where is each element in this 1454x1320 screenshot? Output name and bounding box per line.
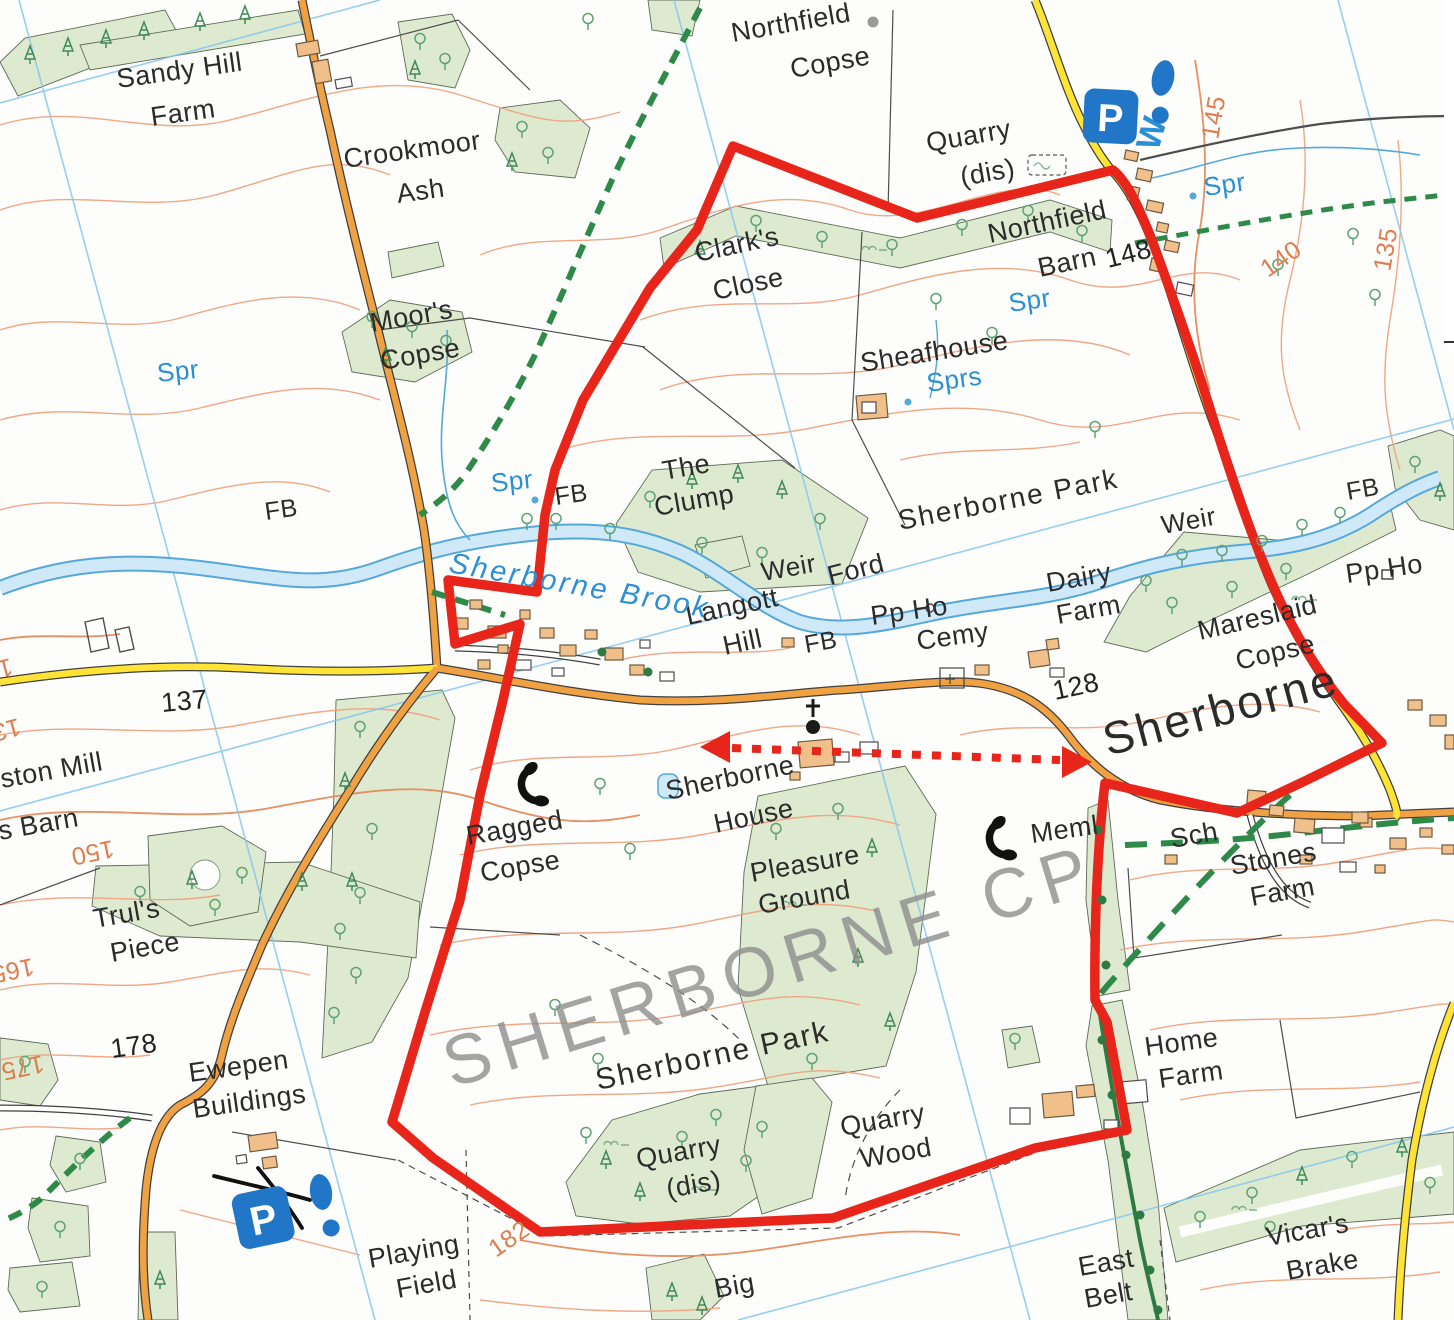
gray-dot-marker [868,17,879,28]
tree-belt-dot-icon [598,648,607,657]
map-label-fb: FB [553,479,590,511]
tree-belt-dot-icon [644,668,653,677]
map-label-spr: Spr [155,354,200,388]
map-viewport[interactable]: Sandy HillFarmCrookmoorAshNorthfieldCops… [0,0,1454,1320]
tree-belt-dot-icon [1154,1306,1163,1315]
map-label-fb: FB [802,626,839,659]
tree-belt-dot-icon [1122,1151,1131,1160]
tree-belt-dot-icon [1108,1091,1117,1100]
map-label-spr: Spr [1202,166,1248,202]
tree-belt-dot-icon [1098,1036,1107,1045]
map-label-137: 137 [160,684,209,718]
tree-belt-dot-icon [1136,1211,1145,1220]
parking-icon: P [1082,88,1139,145]
map-edge [1444,0,1454,350]
map-label-fb: FB [263,494,300,526]
map-label-spr: Spr [1007,282,1053,318]
tree-belt-dot-icon [1102,961,1111,970]
os-map-canvas[interactable]: Sandy HillFarmCrookmoorAshNorthfieldCops… [0,0,1454,1320]
tree-belt-dot-icon [1146,1266,1155,1275]
map-label-fb: FB [1344,473,1381,506]
parking-icon: P [230,1184,296,1250]
map-label-178: 178 [109,1028,159,1064]
map-label-spr: Spr [489,464,534,498]
svg-text:P: P [1096,97,1124,141]
